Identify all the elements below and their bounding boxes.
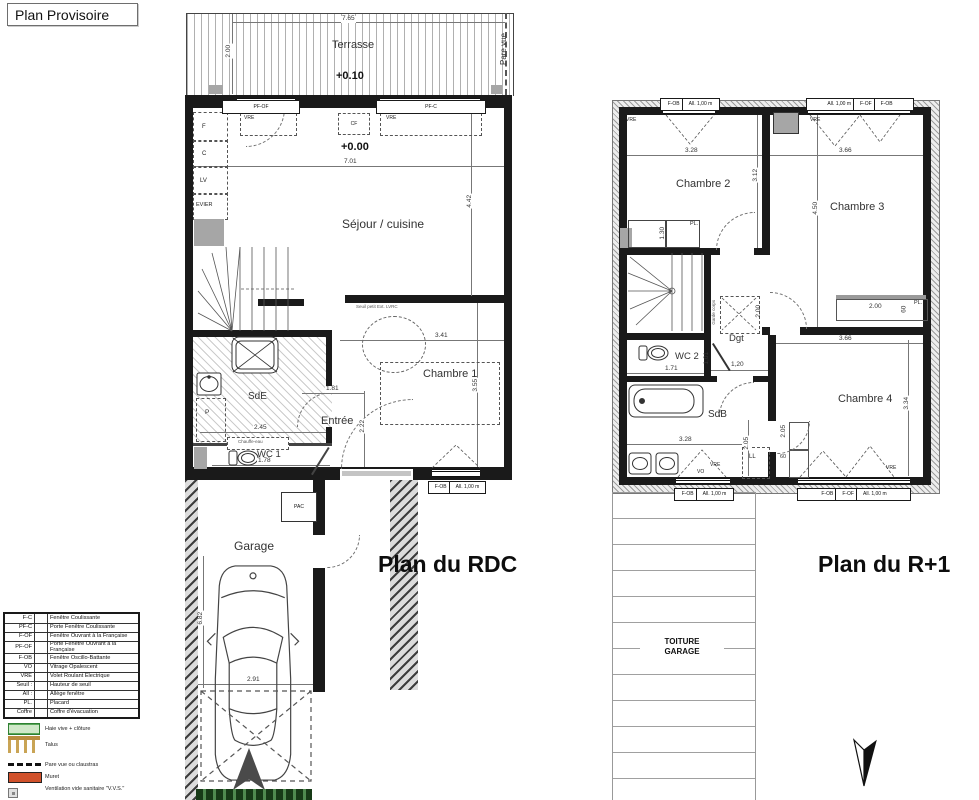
sdb-depth-dim: 2.05: [744, 436, 751, 451]
ch4-width-dim: 3.66: [838, 336, 853, 343]
toiture-garage-label: TOITURE GARAGE: [640, 637, 724, 656]
opening-type: F-OB: [680, 492, 696, 497]
legend-code: Coffre: [5, 709, 35, 717]
legend-row: F-OFFenêtre Ouvrant à la Française: [5, 632, 138, 641]
opening-allege: All. 1,00 m: [701, 492, 729, 497]
talus-swatch: [8, 736, 40, 753]
door-swing: [327, 535, 360, 568]
legend-desc: Coffre d'évacuation: [48, 710, 138, 716]
room-label-sejour: Séjour / cuisine: [342, 218, 424, 230]
stairs: [626, 253, 704, 331]
opening-type: F-OF: [840, 492, 856, 497]
double-sink-icon: [628, 452, 680, 476]
wall: [326, 427, 332, 443]
talus-label: Talus: [45, 742, 58, 749]
legend-row: VREVolet Roulant Electrique: [5, 672, 138, 681]
room-label-sdb: SdB: [708, 410, 727, 420]
legend-desc: Fenêtre Oscillo-Battante: [48, 656, 138, 662]
cf-label: CF: [351, 121, 358, 127]
legend-row: F-OBFenêtre Oscillo-Battante: [5, 653, 138, 662]
wc1-width-dim: 1.78: [257, 458, 272, 465]
opening-label-box: F-OB All. 1,00 m: [660, 98, 720, 111]
legend-code: All :: [5, 691, 35, 699]
entrance-arrow-icon: [233, 748, 265, 792]
coffre-box: CF: [338, 113, 370, 135]
room-label-sde: SdE: [248, 392, 267, 402]
legend-code: F-OF: [5, 633, 35, 641]
legend-desc: Fenêtre Ouvrant à la Française: [48, 634, 138, 640]
ch1-depth-dim: 3.55: [473, 378, 480, 393]
evier-label: EVIER: [196, 203, 213, 209]
dim-line: [232, 22, 505, 23]
wc2-door-dim: 1,01: [704, 351, 711, 366]
legend-row: VOVitrage Opalescent: [5, 663, 138, 672]
opening-type: F-OB: [666, 102, 682, 107]
pac-label: PAC: [294, 504, 304, 510]
toilet-icon: [228, 449, 260, 467]
muret-swatch: [8, 772, 42, 783]
sde-width-dim: 2.45: [253, 425, 268, 432]
garage-width-dim: 2.91: [246, 677, 261, 684]
ch4-depth-dim: 3.34: [904, 396, 911, 411]
legend-row: Seuil :Hauteur de seuil: [5, 681, 138, 690]
vo-label: VO: [697, 470, 704, 475]
wc2-width-dim: 1.71: [664, 366, 679, 373]
legend-code: F-OB: [5, 654, 35, 662]
ch2-width-dim: 3.28: [684, 148, 699, 155]
door-swing: [341, 399, 413, 469]
tremie-cross: [720, 296, 758, 332]
r1-plan-title: Plan du R+1: [818, 551, 950, 578]
opening-allege: All. 1,00 m: [825, 102, 853, 107]
legend-code: PF-C: [5, 624, 35, 632]
document-title: Plan Provisoire: [15, 8, 109, 22]
terrasse-post: [491, 85, 502, 94]
haie-swatch: [8, 723, 40, 735]
legend-table: F-CFenêtre Coulissante PF-CPorte Fenêtre…: [3, 612, 140, 719]
placard-depth-dim: 60: [901, 305, 908, 314]
legend-desc: Hauteur de seuil: [48, 683, 138, 689]
room-label-chambre2: Chambre 2: [676, 179, 730, 190]
legend-row: PL.Placard: [5, 699, 138, 708]
toilet-icon: [638, 344, 670, 362]
placard-label: PL.: [914, 301, 922, 307]
legend-row: CoffreCoffre d'évacuation: [5, 708, 138, 717]
wall: [345, 295, 504, 303]
opening-type: PF-C: [423, 105, 439, 110]
placard-label: PL.: [690, 222, 698, 228]
shower-icon: [231, 336, 279, 374]
entree-width-dim: 1.81: [325, 386, 340, 393]
terrasse-post: [209, 85, 223, 94]
placard-dim: 1.30: [660, 226, 667, 241]
legend-code: Seuil :: [5, 682, 35, 690]
opening-type: PF-OF: [252, 105, 271, 110]
lave-linge-label: LL: [749, 454, 756, 460]
vre-label: VRE: [626, 118, 636, 123]
sejour-depth-dim: 4.42: [467, 194, 474, 209]
rdc-plan-title: Plan du RDC: [378, 551, 517, 578]
legend-code: VO: [5, 664, 35, 672]
placard-label: P: [205, 410, 209, 417]
wall: [326, 337, 332, 392]
cellier-box: [193, 140, 228, 168]
legend-desc: Placard: [48, 701, 138, 707]
legend-row: All :Allège fenêtre: [5, 690, 138, 699]
room-label-garage: Garage: [234, 540, 274, 552]
placard-depth-dim: 2.05: [781, 424, 788, 439]
opening-label-box: F-OB All. 1,00 m: [674, 488, 734, 501]
wall: [504, 95, 512, 480]
sejour-level: +0.00: [341, 142, 369, 153]
dim-line: [193, 166, 504, 167]
small-note: Seuil petit Ext. LVRC: [356, 305, 398, 310]
placard-width-dim: 2.00: [868, 304, 883, 311]
wall: [185, 95, 193, 480]
wall-fixture: [194, 447, 207, 469]
legend-code: F-C: [5, 614, 35, 623]
opening-label-box: All. 1,00 m F-OF F-OB: [806, 98, 914, 111]
terrasse-level: +0.10: [336, 71, 364, 82]
opening-type: F-OF: [858, 102, 874, 107]
fridge-label: F: [202, 124, 206, 130]
room-label-chambre4: Chambre 4: [838, 394, 892, 405]
legend-row: PF-OFPorte Fenêtre Ouvrant à la Français…: [5, 641, 138, 653]
pac-box: PAC: [281, 492, 317, 522]
pare-vue-swatch: [8, 763, 42, 766]
room-label-entree: Entrée: [321, 416, 353, 427]
bathtub-icon: [628, 384, 704, 418]
legend-desc: Fenêtre Coulissante: [48, 616, 138, 622]
floor-plan-sheet: Plan Provisoire 7.65 2.00 Terrasse +0.10…: [0, 0, 979, 800]
entree-depth-dim: 2.22: [360, 419, 367, 434]
opening-allege: All. 1,00 m: [454, 485, 482, 490]
terrasse-depth-dim: 2.00: [226, 44, 233, 59]
room-label-wc2: WC 2: [675, 352, 699, 362]
muret-label: Muret: [45, 774, 59, 781]
lv-label: LV: [200, 178, 207, 184]
garde-corps-note: Garde corps: [712, 300, 717, 325]
wall-hatched: [185, 480, 198, 800]
vvs-label: Ventilation vide sanitaire "V.V.S.": [45, 786, 130, 793]
vvs-swatch: [8, 788, 18, 798]
chauffe-eau-label: Chauffe-eau: [238, 440, 263, 445]
opening-label-box: PF-C: [376, 100, 486, 114]
terrasse-area: [186, 13, 514, 96]
sdb-width-dim: 3.28: [678, 437, 693, 444]
front-door-sill: [342, 471, 411, 476]
legend-code: PF-OF: [5, 642, 35, 653]
sep-dim: 60: [780, 455, 786, 461]
room-label-dgt: Dgt: [729, 334, 744, 344]
terrasse-width-dim: 7.65: [341, 16, 356, 23]
ch1-width-dim: 3.41: [434, 333, 449, 340]
window-swing: [428, 443, 484, 469]
dgt-width-dim: 1,20: [730, 362, 745, 369]
pare-vue-label: Pare vue: [500, 32, 508, 66]
legend-desc: Porte Fenêtre Ouvrant à la Française: [48, 642, 138, 653]
wall: [313, 568, 325, 692]
room-label-chambre1: Chambre 1: [423, 369, 477, 380]
c-label: C: [202, 151, 206, 157]
legend-desc: Vitrage Opalescent: [48, 665, 138, 671]
garage-depth-dim: 6.82: [198, 611, 205, 626]
stairs: [196, 247, 302, 333]
document-title-box: Plan Provisoire: [7, 3, 138, 26]
pare-vue-label: Pare vue ou claustras: [45, 762, 98, 769]
dim-line: [302, 393, 364, 394]
washbasin-icon: [196, 372, 222, 396]
ch3-depth-dim: 4.50: [813, 201, 820, 216]
haie-label: Haie vive + clôture: [45, 726, 90, 733]
opening-type: F-OB: [433, 485, 449, 490]
opening-allege: All. 1,00 m: [861, 492, 889, 497]
opening-label-box: PF-OF: [222, 100, 300, 114]
window-opening: [798, 478, 910, 484]
legend-row: F-CFenêtre Coulissante: [5, 614, 138, 623]
vre-label: VRE: [244, 116, 254, 121]
window-opening: [676, 478, 730, 484]
toiture-line2: GARAGE: [640, 647, 724, 657]
legend-desc: Allège fenêtre: [48, 692, 138, 698]
sejour-width-dim: 7.01: [343, 159, 358, 166]
opening-label-box: F-OB All. 1,00 m: [428, 481, 486, 494]
lave-vaisselle-box: [193, 166, 228, 195]
legend-desc: Porte Fenêtre Coulissante: [48, 625, 138, 631]
placard-box: [196, 398, 226, 442]
vre-label: VRE: [886, 466, 896, 471]
vre-label: VRE: [710, 463, 720, 468]
vre-label: VRE: [386, 116, 396, 121]
tremie-dim: 2.00: [756, 304, 763, 319]
window-opening: [432, 469, 480, 477]
room-label-chambre3: Chambre 3: [830, 202, 884, 213]
vre-label: VRE: [810, 118, 820, 123]
legend-row: PF-CPorte Fenêtre Coulissante: [5, 623, 138, 632]
legend-code: PL.: [5, 700, 35, 708]
legend-desc: Volet Roulant Electrique: [48, 674, 138, 680]
legend-code: VRE: [5, 673, 35, 681]
opening-type: F-OB: [879, 102, 895, 107]
toiture-line1: TOITURE: [640, 637, 724, 647]
room-label-terrasse: Terrasse: [332, 40, 374, 51]
opening-label-box: F-OB F-OF All. 1,00 m: [797, 488, 911, 501]
opening-type: F-OB: [819, 492, 835, 497]
boundary-wall-hatched: [390, 480, 418, 690]
ch2-depth-dim: 3.12: [753, 168, 760, 183]
ch3-width-dim: 3.66: [838, 148, 853, 155]
fridge-box: [193, 112, 228, 142]
opening-allege: All. 1,00 m: [687, 102, 715, 107]
north-arrow-icon: [851, 738, 879, 790]
wall-fixture: [194, 219, 224, 246]
